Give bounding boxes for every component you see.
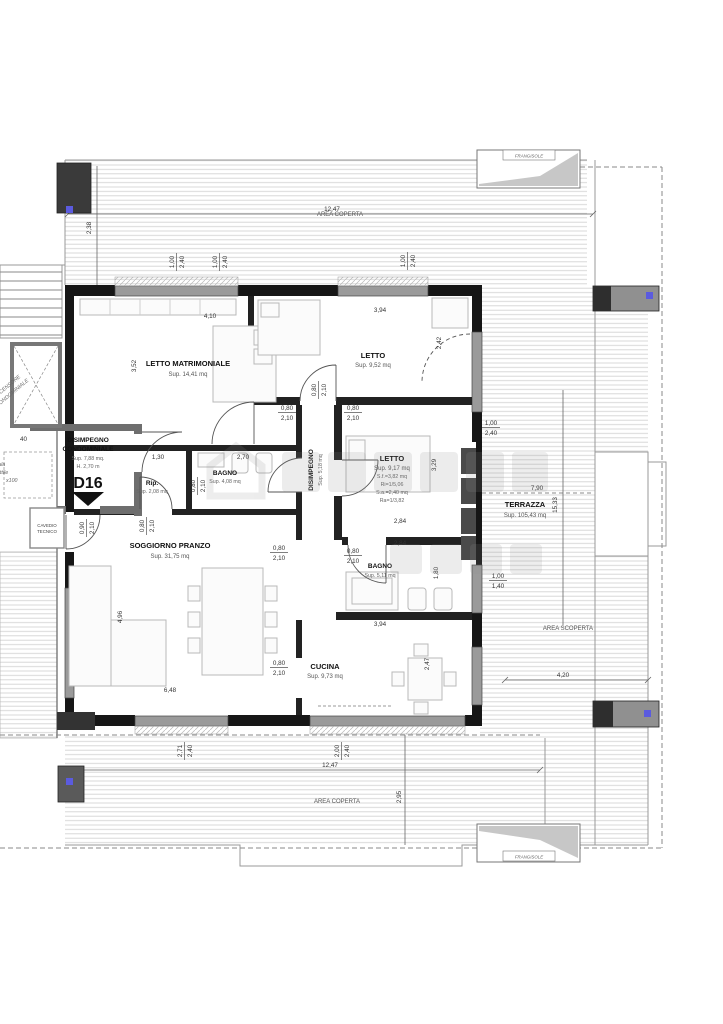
svg-text:CONDOMINIALE: CONDOMINIALE [63,446,115,453]
svg-text:0,80: 0,80 [190,479,197,492]
svg-text:12,47: 12,47 [324,206,340,213]
svg-text:2,40: 2,40 [344,744,351,757]
svg-text:1,30: 1,30 [152,454,165,461]
svg-text:Ra=1/3,82: Ra=1/3,82 [380,498,405,504]
svg-text:Sup. 9,73 mq: Sup. 9,73 mq [307,674,343,680]
svg-text:2,10: 2,10 [273,555,286,562]
marker-dot [66,206,73,213]
floor-plan-page: ASCENSORE CONDOMINIALE CAVEDIO TECNICO S… [0,0,723,1024]
svg-text:2,10: 2,10 [281,415,294,422]
svg-text:Sup. 105,43 mq: Sup. 105,43 mq [504,513,546,519]
svg-text:0,80: 0,80 [273,660,286,667]
svg-text:TECNICO: TECNICO [37,529,57,534]
room-label-letto-matrimoniale: LETTO MATRIMONIALE [146,359,230,368]
svg-text:2,10: 2,10 [273,670,286,677]
cavedio-tecnico: CAVEDIO TECNICO [30,508,64,548]
svg-text:2,10: 2,10 [200,479,207,492]
svg-text:6,48: 6,48 [164,687,177,694]
svg-text:0,80: 0,80 [273,545,286,552]
room-label-bagno-1: BAGNO [213,470,237,477]
room-label-letto-1: LETTO [361,351,386,360]
svg-text:2,10: 2,10 [347,558,360,565]
svg-text:Scala: Scala [0,462,5,468]
svg-text:Sup. 2,08 mq: Sup. 2,08 mq [136,489,168,495]
room-label-bagno-2: BAGNO [368,563,392,570]
frangisole-top: FRANGISOLE [477,150,580,188]
svg-text:Sup. 9,52 mq: Sup. 9,52 mq [355,363,391,369]
svg-text:2,10: 2,10 [347,415,360,422]
svg-text:2,40: 2,40 [410,254,417,267]
svg-text:2,71: 2,71 [177,744,184,757]
svg-text:0,80: 0,80 [347,405,360,412]
svg-text:0,80: 0,80 [311,383,318,396]
svg-text:2,47: 2,47 [424,657,431,670]
svg-text:3,52: 3,52 [131,359,138,372]
marker-dot [644,710,651,717]
svg-text:Sup. 14,41 mq: Sup. 14,41 mq [168,372,207,378]
svg-text:2,84: 2,84 [394,518,407,525]
svg-text:2,42: 2,42 [436,336,443,349]
svg-text:1,00: 1,00 [492,573,505,580]
svg-text:2,10: 2,10 [89,521,96,534]
svg-text:2,10: 2,10 [321,383,328,396]
floor-plan-drawing: ASCENSORE CONDOMINIALE CAVEDIO TECNICO S… [0,0,723,1024]
svg-text:retrattile: retrattile [0,470,8,476]
svg-text:0,80: 0,80 [139,519,146,532]
svg-text:12,47: 12,47 [322,762,338,769]
svg-text:FRANGISOLE: FRANGISOLE [515,154,543,159]
unit-id: D16 [73,475,102,492]
svg-text:0,80: 0,80 [281,405,294,412]
svg-text:Sup. 7,88 mq.: Sup. 7,88 mq. [72,456,105,462]
svg-text:0,90: 0,90 [79,521,86,534]
svg-text:x100: x100 [5,478,18,484]
svg-text:1,40: 1,40 [492,583,505,590]
area-scoperta: AREA SCOPERTA [543,626,593,632]
room-label-terrazza: TERRAZZA [505,500,546,509]
svg-text:2,10: 2,10 [149,519,156,532]
svg-text:4,20: 4,20 [557,672,570,679]
svg-text:CAVEDIO: CAVEDIO [37,523,57,528]
svg-text:2,40: 2,40 [222,255,229,268]
marker-dot [646,292,653,299]
svg-text:1,00: 1,00 [169,255,176,268]
svg-text:2,95: 2,95 [396,790,403,803]
svg-text:FRANGISOLE: FRANGISOLE [515,855,543,860]
svg-text:2,40: 2,40 [187,744,194,757]
scoperta-notch [595,452,666,556]
svg-text:3,94: 3,94 [374,621,387,628]
svg-text:Sup. 5,11 mq: Sup. 5,11 mq [364,573,395,579]
marker-dot [66,778,73,785]
svg-text:0,80: 0,80 [347,548,360,555]
stair-flight [0,265,62,338]
svg-text:2,40: 2,40 [485,430,498,437]
svg-text:3,94: 3,94 [374,307,387,314]
svg-text:2,40: 2,40 [179,255,186,268]
svg-text:1,00: 1,00 [212,255,219,268]
svg-text:1,00: 1,00 [485,420,498,427]
room-label-cucina: CUCINA [310,662,340,671]
area-coperta-bottom: AREA COPERTA [314,799,360,805]
elevator-shaft: ASCENSORE CONDOMINIALE [0,344,60,426]
svg-text:15,33: 15,33 [552,497,559,513]
svg-text:2,38: 2,38 [86,221,93,234]
frangisole-b bottom: FRANGISOLE [477,824,580,862]
svg-text:4,96: 4,96 [117,610,124,623]
svg-text:40: 40 [20,436,28,443]
room-label-rip: Rip. [146,480,158,487]
svg-text:2,00: 2,00 [334,744,341,757]
svg-text:1,00: 1,00 [400,254,407,267]
svg-text:DISIMPEGNO: DISIMPEGNO [67,437,109,444]
svg-text:4,10: 4,10 [204,313,217,320]
svg-text:Sup. 31,75 mq: Sup. 31,75 mq [150,554,189,560]
svg-text:H. 2,70 m: H. 2,70 m [77,464,101,470]
room-label-soggiorno: SOGGIORNO PRANZO [130,541,211,550]
svg-text:Sup. 4,08 mq: Sup. 4,08 mq [209,479,241,485]
